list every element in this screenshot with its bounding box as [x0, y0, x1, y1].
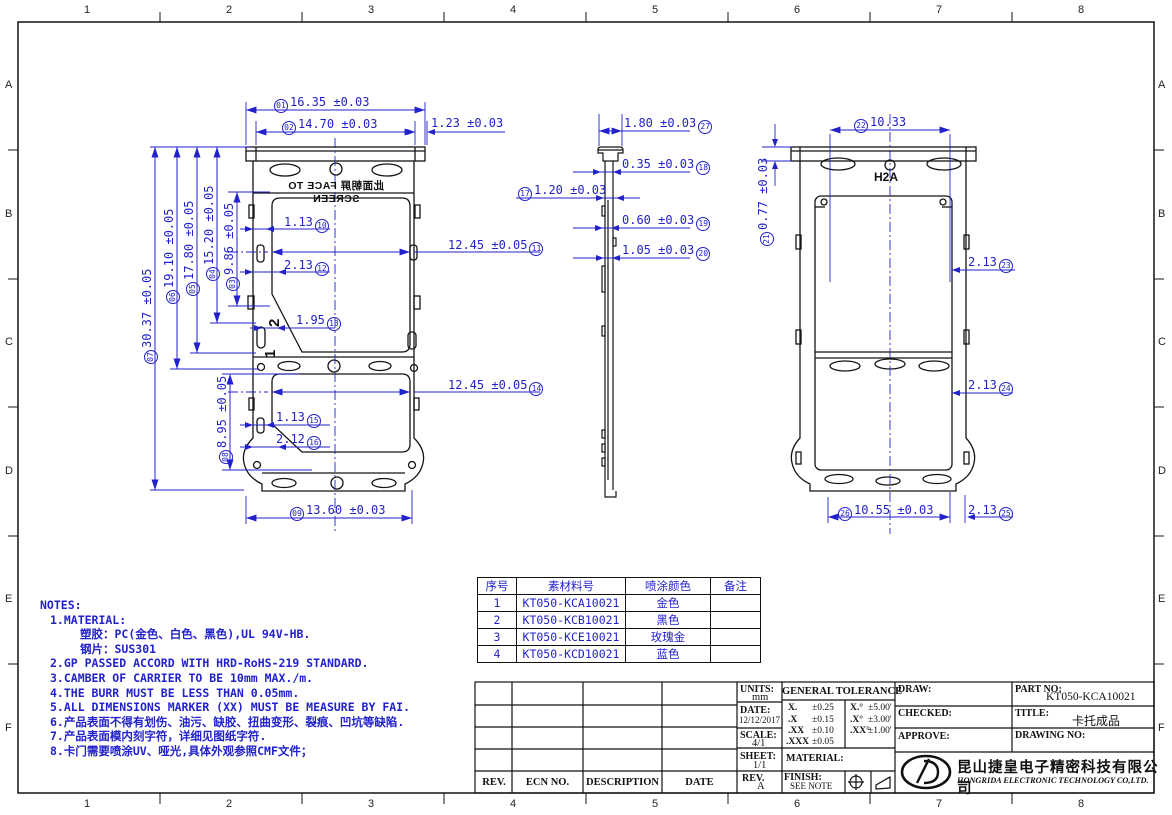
surface-finish-symbols [848, 774, 890, 790]
grid-row-label: E [1158, 593, 1165, 605]
dim-13: 1.9513 [296, 313, 343, 331]
company-name-en: HONGRIDA ELECTRONIC TECHNOLOGY CO,LTD. [957, 776, 1149, 785]
dim-width-outer: 0116.35 ±0.03 [272, 95, 369, 113]
dim-20: 1.05 ±0.0320 [622, 243, 712, 261]
material-label: MATERIAL: [786, 753, 844, 764]
tol-a2: .XX [788, 726, 804, 736]
material-table-header-row: 序号 素材料号 喷涂颜色 备注 [478, 578, 761, 595]
notes-title: NOTES: [40, 598, 410, 613]
projection-angle-icon [876, 777, 890, 789]
tolerance-title: GENERAL TOLERANCE [782, 686, 895, 697]
tol-d1: ±3.00' [868, 715, 892, 725]
grid-col-label: 1 [84, 798, 90, 810]
tol-c1: .X° [850, 715, 863, 725]
tol-a1: .X [788, 715, 797, 725]
material-row: 2 KT050-KCB10021 黑色 [478, 612, 761, 629]
grid-row-label: B [1158, 208, 1165, 220]
note-line: 5.ALL DIMENSIONS MARKER (XX) MUST BE MEA… [40, 700, 410, 715]
note-line: 2.GP PASSED ACCORD WITH HRD-RoHS-219 STA… [40, 656, 410, 671]
dim-25: 2.1325 [968, 503, 1015, 521]
cell-color: 黑色 [626, 612, 711, 629]
grid-row-label: A [1158, 79, 1165, 91]
sheet-value: 1/1 [753, 760, 766, 771]
description-col-header: DESCRIPTION [583, 777, 662, 788]
dim-gap: 1.23 ±0.03 [431, 116, 503, 130]
dim-height-07: 0730.37 ±0.05 [140, 269, 158, 366]
date-value: 12/12/2017 [739, 715, 780, 725]
grid-col-label: 5 [652, 798, 658, 810]
dim-pocket2-width: 12.45 ±0.0514 [448, 378, 545, 396]
dim-height-06: 0619.10 ±0.05 [162, 209, 180, 306]
engineering-drawing-sheet: 1 2 3 4 5 6 7 8 1 2 3 4 5 6 7 8 A B C D … [0, 0, 1172, 815]
partno-value: KT050-KCA10021 [1046, 691, 1135, 703]
grid-row-label: D [5, 465, 13, 477]
cell-part-number: KT050-KCA10021 [517, 595, 626, 612]
dim-height-08: 088.95 ±0.05 [215, 376, 233, 466]
material-row: 4 KT050-KCD10021 蓝色 [478, 646, 761, 663]
grid-row-label: F [5, 722, 12, 734]
note-line: 塑胶：PC(金色、白色、黑色),UL 94V-HB. [40, 627, 410, 642]
note-line: 6.产品表面不得有划伤、油污、缺胶、扭曲变形、裂痕、凹坑等缺陷. [40, 715, 410, 730]
grid-row-label: F [1158, 722, 1165, 734]
grid-col-label: 4 [510, 4, 516, 16]
grid-row-label: E [5, 593, 12, 605]
grid-row-label: A [5, 79, 12, 91]
cell-color: 蓝色 [626, 646, 711, 663]
rev-col-header: REV. [477, 777, 511, 788]
grid-col-label: 6 [794, 4, 800, 16]
grid-row-label: D [1158, 465, 1166, 477]
h2a-marking: H2A [874, 170, 898, 184]
tol-c2: .XX° [850, 726, 870, 736]
cell-index: 3 [478, 629, 517, 646]
dim-19: 0.60 ±0.0319 [622, 213, 712, 231]
grid-col-label: 2 [226, 798, 232, 810]
notes-block: NOTES: 1.MATERIAL: 塑胶：PC(金色、白色、黑色),UL 94… [40, 598, 410, 759]
title-value: 卡托成品 [1072, 712, 1120, 729]
dim-23: 2.1323 [968, 255, 1015, 273]
note-line: 钢片：SUS301 [40, 642, 410, 657]
grid-col-label: 1 [84, 4, 90, 16]
tol-d2: ±1.00' [868, 726, 892, 736]
cell-color: 金色 [626, 595, 711, 612]
dim-height-03: 039.86 ±0.05 [222, 203, 240, 293]
dim-24: 2.1324 [968, 378, 1015, 396]
tol-b1: ±0.15 [812, 715, 834, 725]
drawingno-label: DRAWING NO: [1015, 730, 1085, 741]
dim-15: 1.1315 [276, 410, 323, 428]
rear-view-outline [791, 147, 976, 491]
grid-row-label: B [5, 208, 12, 220]
cell-part-number: KT050-KCD10021 [517, 646, 626, 663]
dim-26: 2610.55 ±0.03 [836, 503, 933, 521]
cell-remark [711, 595, 761, 612]
scale-value: 4/1 [752, 738, 765, 749]
dim-width-bottom: 0913.60 ±0.03 [288, 503, 385, 521]
note-line: 3.CAMBER OF CARRIER TO BE 10mm MAX./m. [40, 671, 410, 686]
grid-col-label: 4 [510, 798, 516, 810]
col-header: 备注 [711, 578, 761, 595]
dim-22: 2210.33 [852, 115, 906, 133]
note-line: 8.卡门需要喷涂UV、哑光,具体外观参照CMF文件； [40, 744, 410, 759]
col-header: 素材料号 [517, 578, 626, 595]
checked-label: CHECKED: [898, 708, 952, 719]
pocket-number-1: 1 [262, 350, 279, 358]
finish-value: SEE NOTE [790, 781, 832, 791]
grid-row-label: C [5, 336, 13, 348]
dim-width-inner: 0214.70 ±0.03 [280, 117, 377, 135]
grid-col-label: 7 [936, 798, 942, 810]
grid-row-label: C [1158, 336, 1166, 348]
tol-b2: ±0.10 [812, 726, 834, 736]
cell-index: 4 [478, 646, 517, 663]
tol-b0: ±0.25 [812, 703, 834, 713]
grid-col-label: 8 [1078, 4, 1084, 16]
cell-part-number: KT050-KCE10021 [517, 629, 626, 646]
cell-remark [711, 646, 761, 663]
grid-col-label: 5 [652, 4, 658, 16]
dim-12: 2.1312 [284, 258, 331, 276]
material-table: 序号 素材料号 喷涂颜色 备注 1 KT050-KCA10021 金色 2 KT… [477, 577, 761, 663]
tol-a3: .XXX [786, 737, 809, 747]
dimension-lines [155, 110, 950, 518]
dim-height-04: 0415.20 ±0.05 [202, 186, 220, 283]
tol-b3: ±0.05 [812, 737, 834, 747]
cell-remark [711, 612, 761, 629]
draw-label: DRAW: [898, 684, 931, 695]
company-logo [902, 756, 950, 788]
cell-index: 2 [478, 612, 517, 629]
cell-color: 玫瑰金 [626, 629, 711, 646]
date-col-header: DATE [662, 777, 737, 788]
col-header: 序号 [478, 578, 517, 595]
note-line: 1.MATERIAL: [40, 613, 410, 628]
dim-height-05: 0517.80 ±0.05 [182, 201, 200, 298]
dim-17: 171.20 ±0.03 [516, 183, 606, 201]
col-header: 喷涂颜色 [626, 578, 711, 595]
note-line: 7.产品表面模内刻字符，详细见图纸字符. [40, 729, 410, 744]
ecn-col-header: ECN NO. [512, 777, 583, 788]
cell-index: 1 [478, 595, 517, 612]
note-line: 4.THE BURR MUST BE LESS THAN 0.05mm. [40, 686, 410, 701]
grid-col-label: 2 [226, 4, 232, 16]
tol-c0: X.° [850, 703, 863, 713]
grid-col-label: 6 [794, 798, 800, 810]
rev-value: A [757, 781, 765, 792]
approve-label: APPROVE: [898, 731, 950, 742]
dim-16: 2.1216 [276, 432, 323, 450]
grid-col-label: 3 [368, 4, 374, 16]
grid-col-label: 7 [936, 4, 942, 16]
dim-pocket1-width: 12.45 ±0.0511 [448, 238, 545, 256]
pocket-number-2: 2 [266, 319, 283, 327]
cell-remark [711, 629, 761, 646]
face-to-screen-marking: 此面朝屏 FACE TO SCREEN [263, 178, 409, 205]
cell-part-number: KT050-KCB10021 [517, 612, 626, 629]
grid-col-label: 8 [1078, 798, 1084, 810]
grid-col-label: 3 [368, 798, 374, 810]
dim-thickness-27: 1.80 ±0.0327 [624, 116, 714, 134]
units-value: mm [752, 692, 768, 703]
tol-d0: ±5.00' [868, 703, 892, 713]
dim-21: 210.77 ±0.03 [756, 158, 774, 248]
dim-10: 1.1310 [284, 215, 331, 233]
tol-a0: X. [788, 703, 797, 713]
dim-18: 0.35 ±0.0318 [622, 157, 712, 175]
title-label: TITLE: [1015, 708, 1049, 719]
material-row: 3 KT050-KCE10021 玫瑰金 [478, 629, 761, 646]
material-row: 1 KT050-KCA10021 金色 [478, 595, 761, 612]
